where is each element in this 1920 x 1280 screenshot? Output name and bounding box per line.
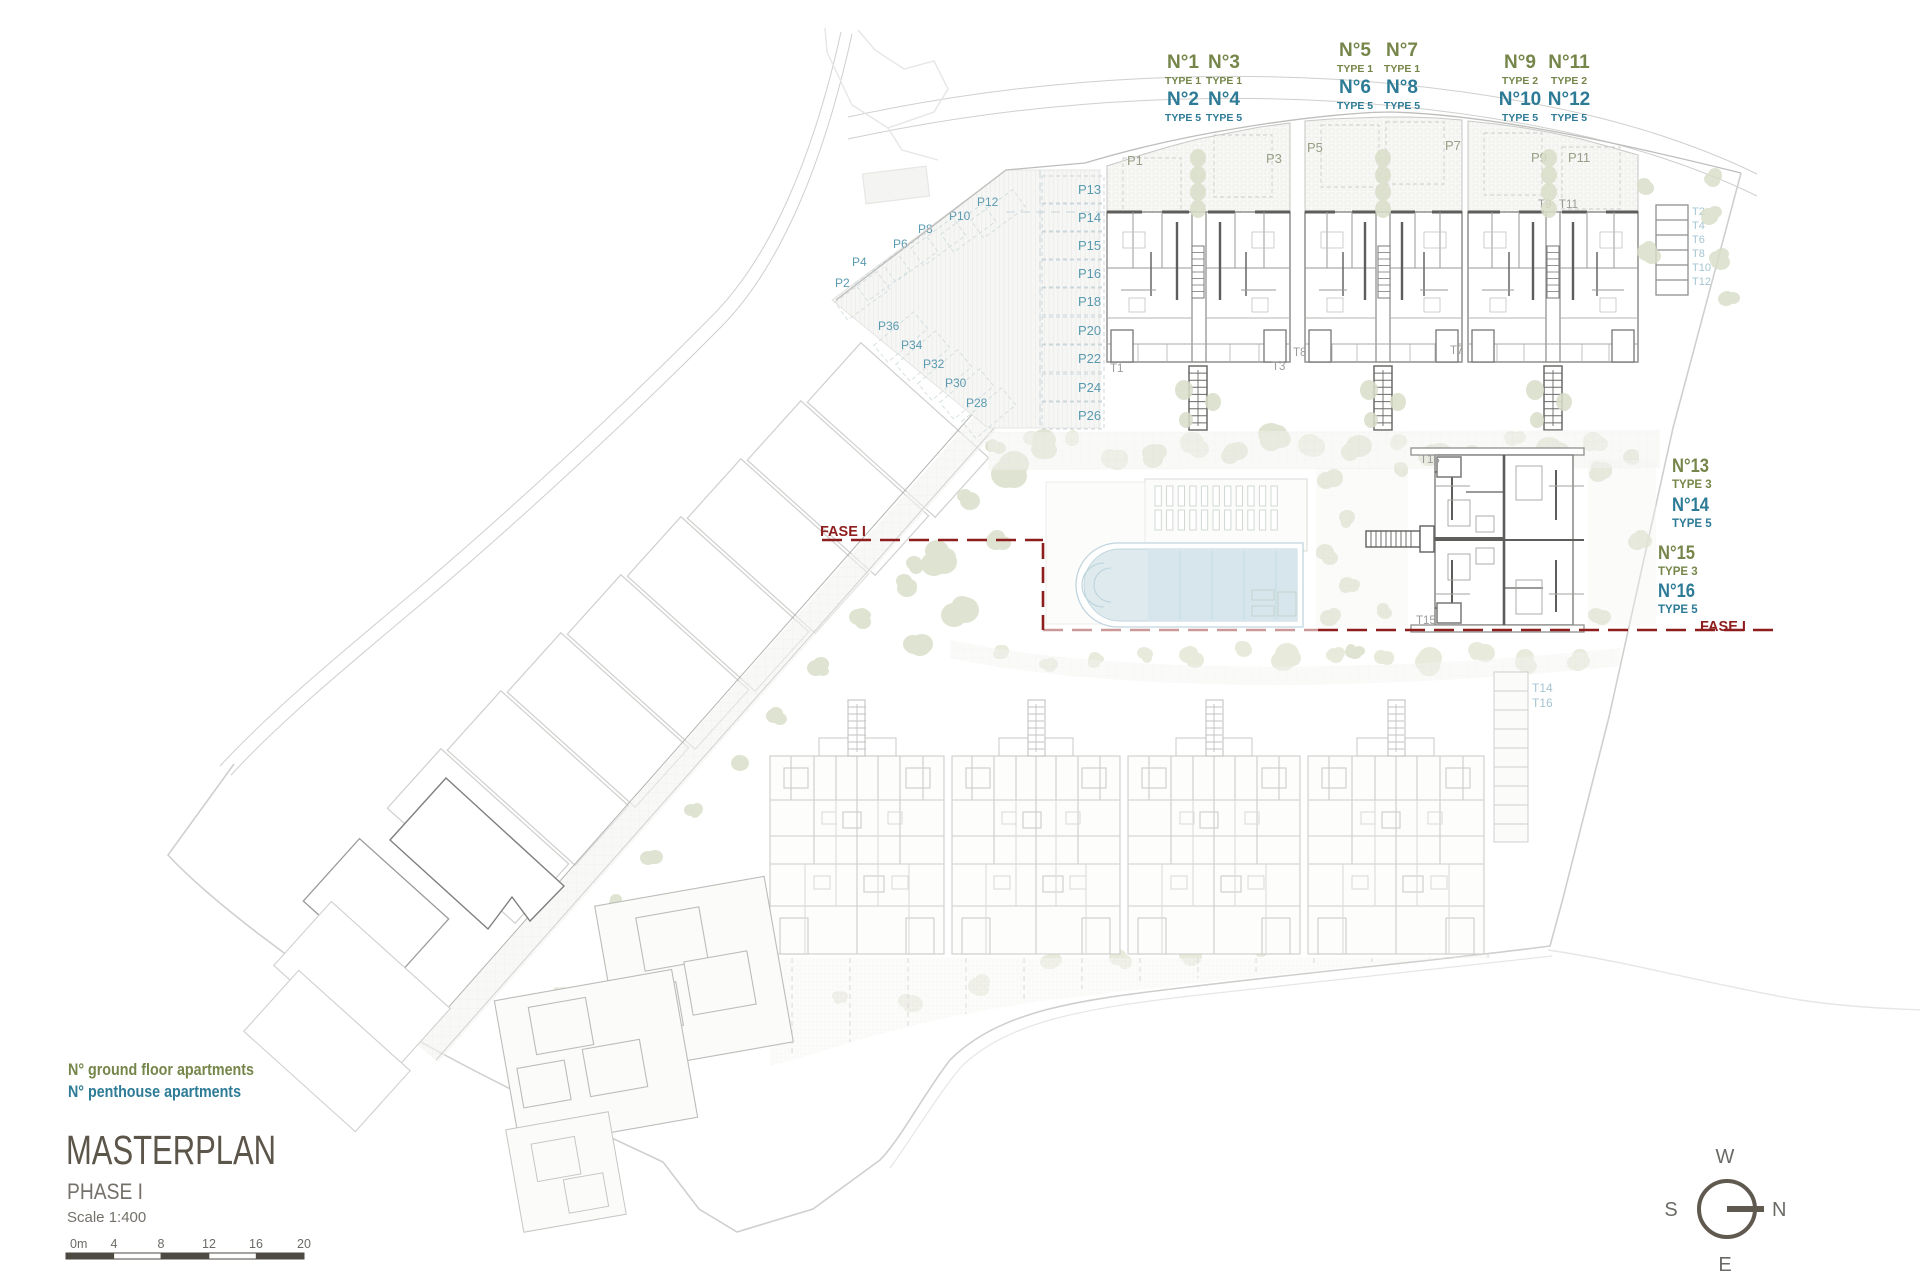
svg-text:N°14: N°14 — [1672, 495, 1709, 516]
svg-text:N°12: N°12 — [1548, 89, 1590, 110]
svg-text:T16: T16 — [1532, 696, 1553, 710]
svg-text:P11: P11 — [1568, 150, 1590, 165]
svg-text:N°1: N°1 — [1167, 52, 1199, 73]
svg-text:20: 20 — [297, 1237, 311, 1251]
svg-text:TYPE 1: TYPE 1 — [1384, 63, 1420, 75]
svg-text:PHASE I: PHASE I — [67, 1179, 143, 1204]
svg-text:P34: P34 — [901, 338, 923, 352]
svg-text:N°16: N°16 — [1658, 581, 1695, 602]
svg-text:N°15: N°15 — [1658, 543, 1695, 564]
svg-text:N: N — [1772, 1199, 1786, 1221]
svg-text:P13: P13 — [1078, 182, 1101, 197]
svg-text:FASE I: FASE I — [820, 524, 866, 540]
svg-text:T15: T15 — [1416, 615, 1436, 627]
svg-text:T3: T3 — [1272, 361, 1285, 373]
svg-text:TYPE 2: TYPE 2 — [1502, 75, 1538, 87]
svg-text:P6: P6 — [893, 237, 908, 251]
svg-text:N° ground floor apartments: N° ground floor apartments — [68, 1061, 254, 1079]
svg-text:TYPE 3: TYPE 3 — [1672, 479, 1712, 491]
svg-text:T14: T14 — [1532, 681, 1553, 695]
svg-text:T6: T6 — [1692, 234, 1705, 246]
svg-text:16: 16 — [249, 1237, 263, 1251]
svg-text:Scale 1:400: Scale 1:400 — [67, 1209, 146, 1226]
svg-text:P26: P26 — [1078, 408, 1101, 423]
svg-text:N° penthouse apartments: N° penthouse apartments — [68, 1083, 241, 1101]
svg-text:P16: P16 — [1078, 266, 1101, 281]
svg-text:S: S — [1664, 1199, 1677, 1221]
svg-text:P2: P2 — [835, 276, 850, 290]
svg-text:W: W — [1716, 1146, 1735, 1168]
svg-text:P28: P28 — [966, 396, 988, 410]
svg-text:4: 4 — [111, 1237, 118, 1251]
svg-text:T8: T8 — [1293, 347, 1306, 359]
svg-text:P14: P14 — [1078, 210, 1101, 225]
svg-text:TYPE 2: TYPE 2 — [1551, 75, 1587, 87]
svg-text:N°9: N°9 — [1504, 52, 1536, 73]
svg-text:0m: 0m — [70, 1237, 87, 1251]
svg-text:P18: P18 — [1078, 294, 1101, 309]
svg-text:TYPE 1: TYPE 1 — [1206, 75, 1242, 87]
svg-text:N°10: N°10 — [1499, 89, 1541, 110]
svg-text:P36: P36 — [878, 319, 900, 333]
svg-text:P4: P4 — [852, 255, 867, 269]
svg-text:P30: P30 — [945, 376, 967, 390]
svg-text:P15: P15 — [1078, 238, 1101, 253]
svg-text:8: 8 — [158, 1237, 165, 1251]
svg-text:P3: P3 — [1266, 151, 1282, 166]
svg-text:T12: T12 — [1692, 276, 1711, 288]
svg-text:TYPE 5: TYPE 5 — [1384, 100, 1420, 112]
svg-text:N°8: N°8 — [1386, 77, 1418, 98]
svg-text:N°6: N°6 — [1339, 77, 1371, 98]
svg-text:N°3: N°3 — [1208, 52, 1240, 73]
svg-text:P8: P8 — [918, 222, 933, 236]
svg-text:TYPE 3: TYPE 3 — [1658, 566, 1698, 578]
svg-text:T10: T10 — [1692, 262, 1711, 274]
svg-text:TYPE 5: TYPE 5 — [1658, 604, 1698, 616]
svg-text:P12: P12 — [977, 195, 999, 209]
svg-text:MASTERPLAN: MASTERPLAN — [66, 1127, 276, 1173]
svg-text:N°2: N°2 — [1167, 89, 1199, 110]
svg-text:N°11: N°11 — [1548, 52, 1590, 73]
svg-text:N°5: N°5 — [1339, 40, 1371, 61]
svg-text:TYPE 5: TYPE 5 — [1672, 518, 1712, 530]
svg-text:TYPE 5: TYPE 5 — [1165, 112, 1201, 124]
svg-text:P1: P1 — [1127, 153, 1143, 168]
svg-text:P22: P22 — [1078, 351, 1101, 366]
svg-text:T11: T11 — [1559, 199, 1578, 211]
svg-text:N°13: N°13 — [1672, 456, 1709, 477]
svg-text:P32: P32 — [923, 357, 945, 371]
svg-text:P7: P7 — [1445, 138, 1461, 153]
svg-text:FASE I: FASE I — [1700, 619, 1746, 635]
svg-text:TYPE 5: TYPE 5 — [1206, 112, 1242, 124]
svg-text:P24: P24 — [1078, 380, 1101, 395]
svg-text:T8: T8 — [1692, 248, 1705, 260]
svg-text:P20: P20 — [1078, 323, 1101, 338]
svg-text:TYPE 5: TYPE 5 — [1502, 112, 1538, 124]
svg-text:T7: T7 — [1450, 345, 1463, 357]
svg-text:P5: P5 — [1307, 140, 1323, 155]
svg-text:TYPE 1: TYPE 1 — [1337, 63, 1373, 75]
svg-text:TYPE 5: TYPE 5 — [1551, 112, 1587, 124]
svg-text:T1: T1 — [1110, 363, 1123, 375]
svg-text:TYPE 5: TYPE 5 — [1337, 100, 1373, 112]
svg-text:E: E — [1718, 1254, 1731, 1276]
svg-text:12: 12 — [202, 1237, 216, 1251]
svg-text:TYPE 1: TYPE 1 — [1165, 75, 1201, 87]
svg-text:N°4: N°4 — [1208, 89, 1240, 110]
svg-text:N°7: N°7 — [1386, 40, 1418, 61]
svg-text:T13: T13 — [1420, 454, 1440, 466]
